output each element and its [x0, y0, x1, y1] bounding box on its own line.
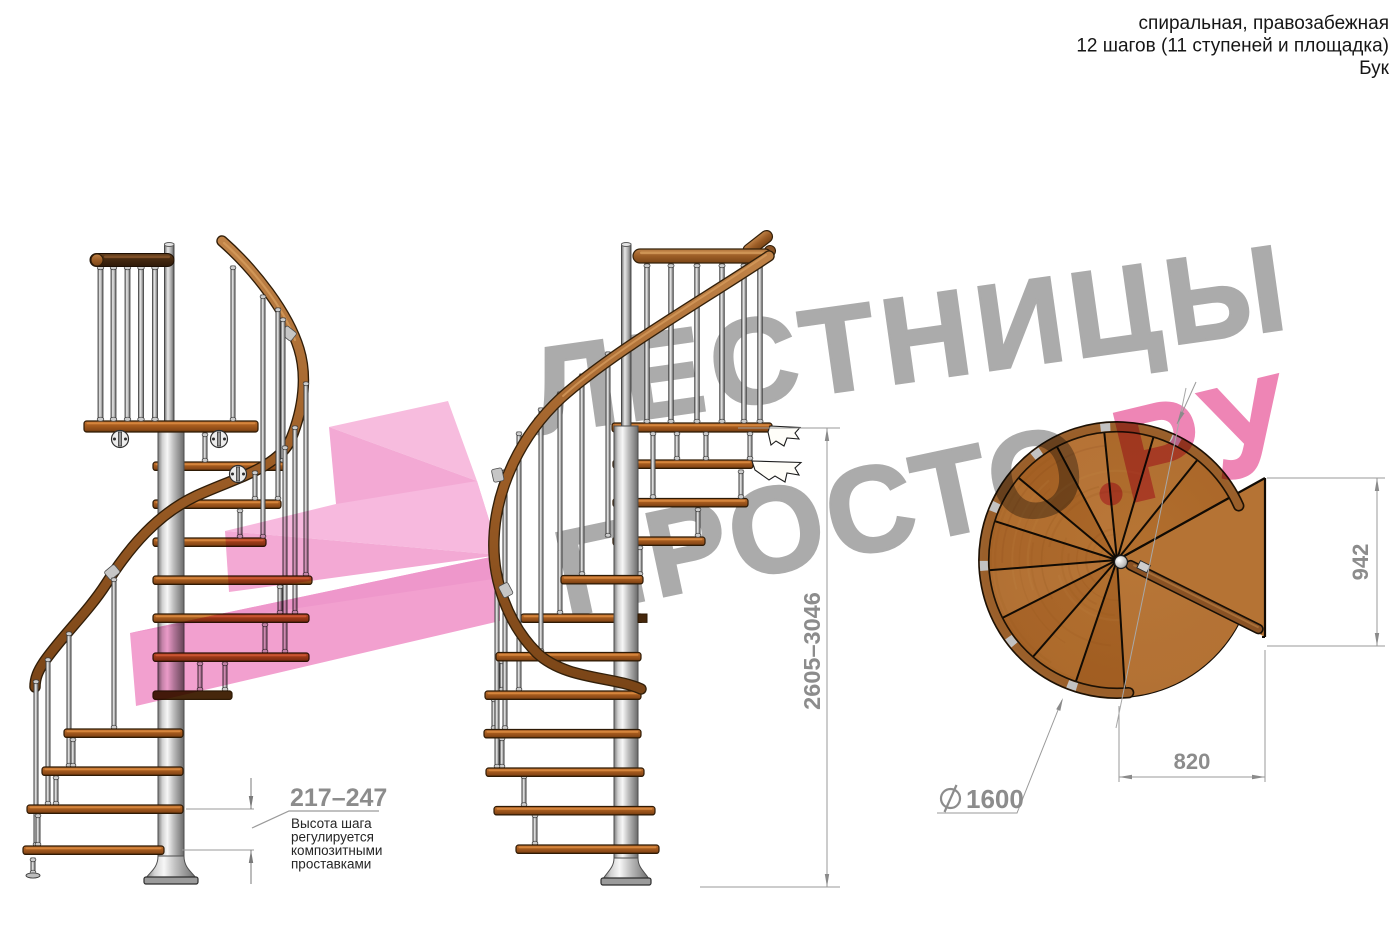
svg-text:217–247: 217–247 [290, 784, 387, 812]
svg-text:942: 942 [1348, 544, 1373, 581]
svg-text:820: 820 [1174, 749, 1211, 774]
svg-text:12 шагов (11 ступеней и площад: 12 шагов (11 ступеней и площадка) [1076, 36, 1389, 57]
svg-text:проставками: проставками [291, 857, 371, 872]
svg-text:Бук: Бук [1359, 58, 1390, 79]
svg-text:спиральная, правозабежная: спиральная, правозабежная [1139, 13, 1389, 34]
svg-text:1600: 1600 [966, 784, 1024, 814]
svg-text:2605–3046: 2605–3046 [799, 592, 825, 710]
